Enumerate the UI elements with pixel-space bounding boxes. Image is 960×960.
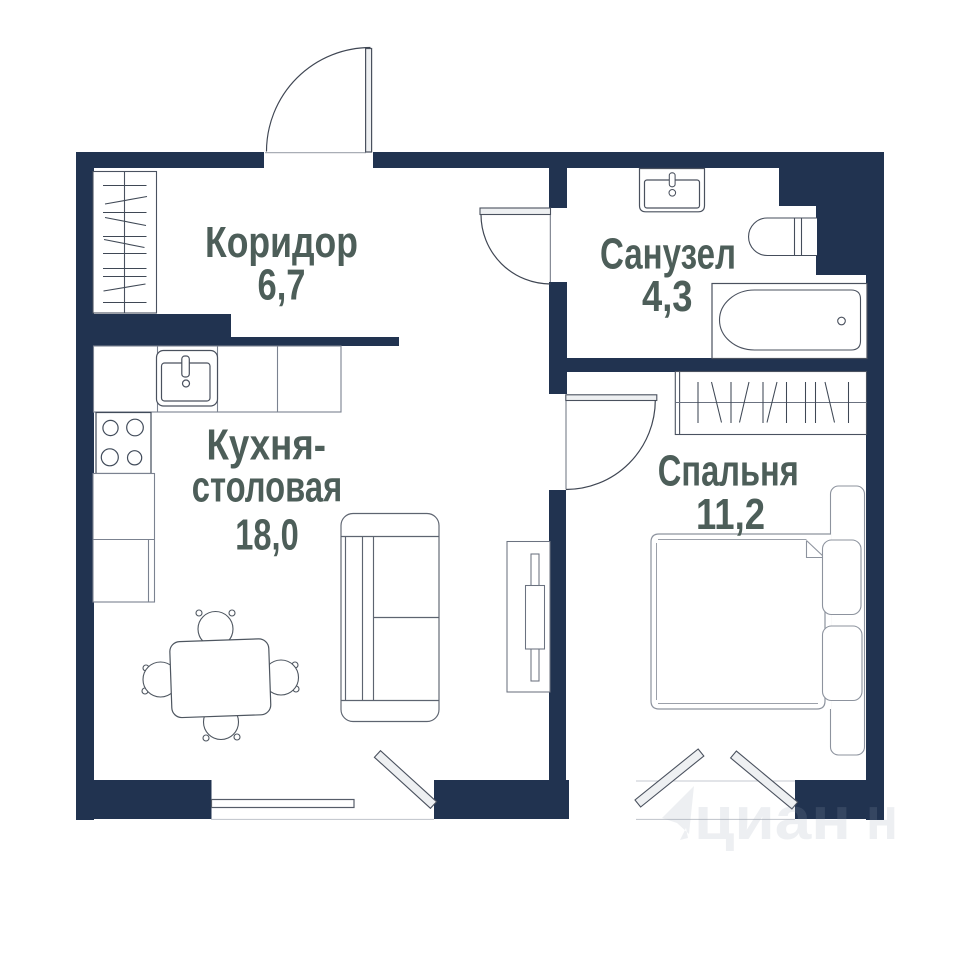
svg-text:н: н	[866, 785, 898, 852]
svg-text:4,3: 4,3	[642, 272, 693, 321]
svg-text:6,7: 6,7	[258, 261, 306, 310]
svg-text:столовая: столовая	[192, 463, 342, 512]
svg-text:циан: циан	[694, 785, 851, 852]
svg-text:11,2: 11,2	[696, 490, 765, 539]
svg-text:Спальня: Спальня	[658, 447, 799, 496]
svg-text:18,0: 18,0	[235, 511, 298, 560]
